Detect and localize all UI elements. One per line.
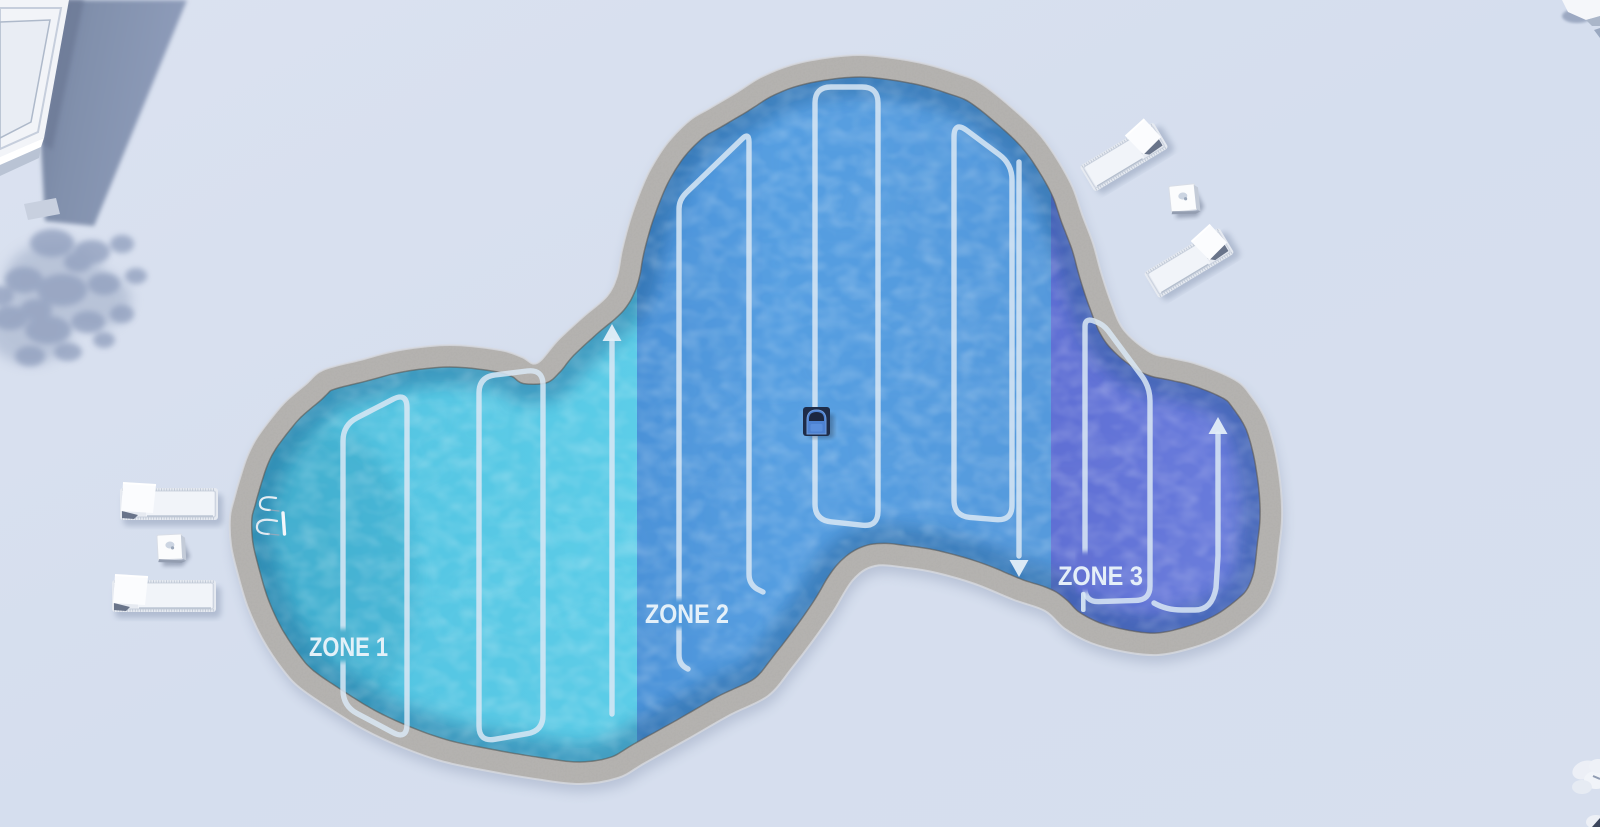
svg-text:ZONE 2: ZONE 2 — [645, 599, 729, 629]
svg-text:ZONE 3: ZONE 3 — [1058, 561, 1143, 591]
svg-text:ZONE 1: ZONE 1 — [309, 632, 388, 662]
